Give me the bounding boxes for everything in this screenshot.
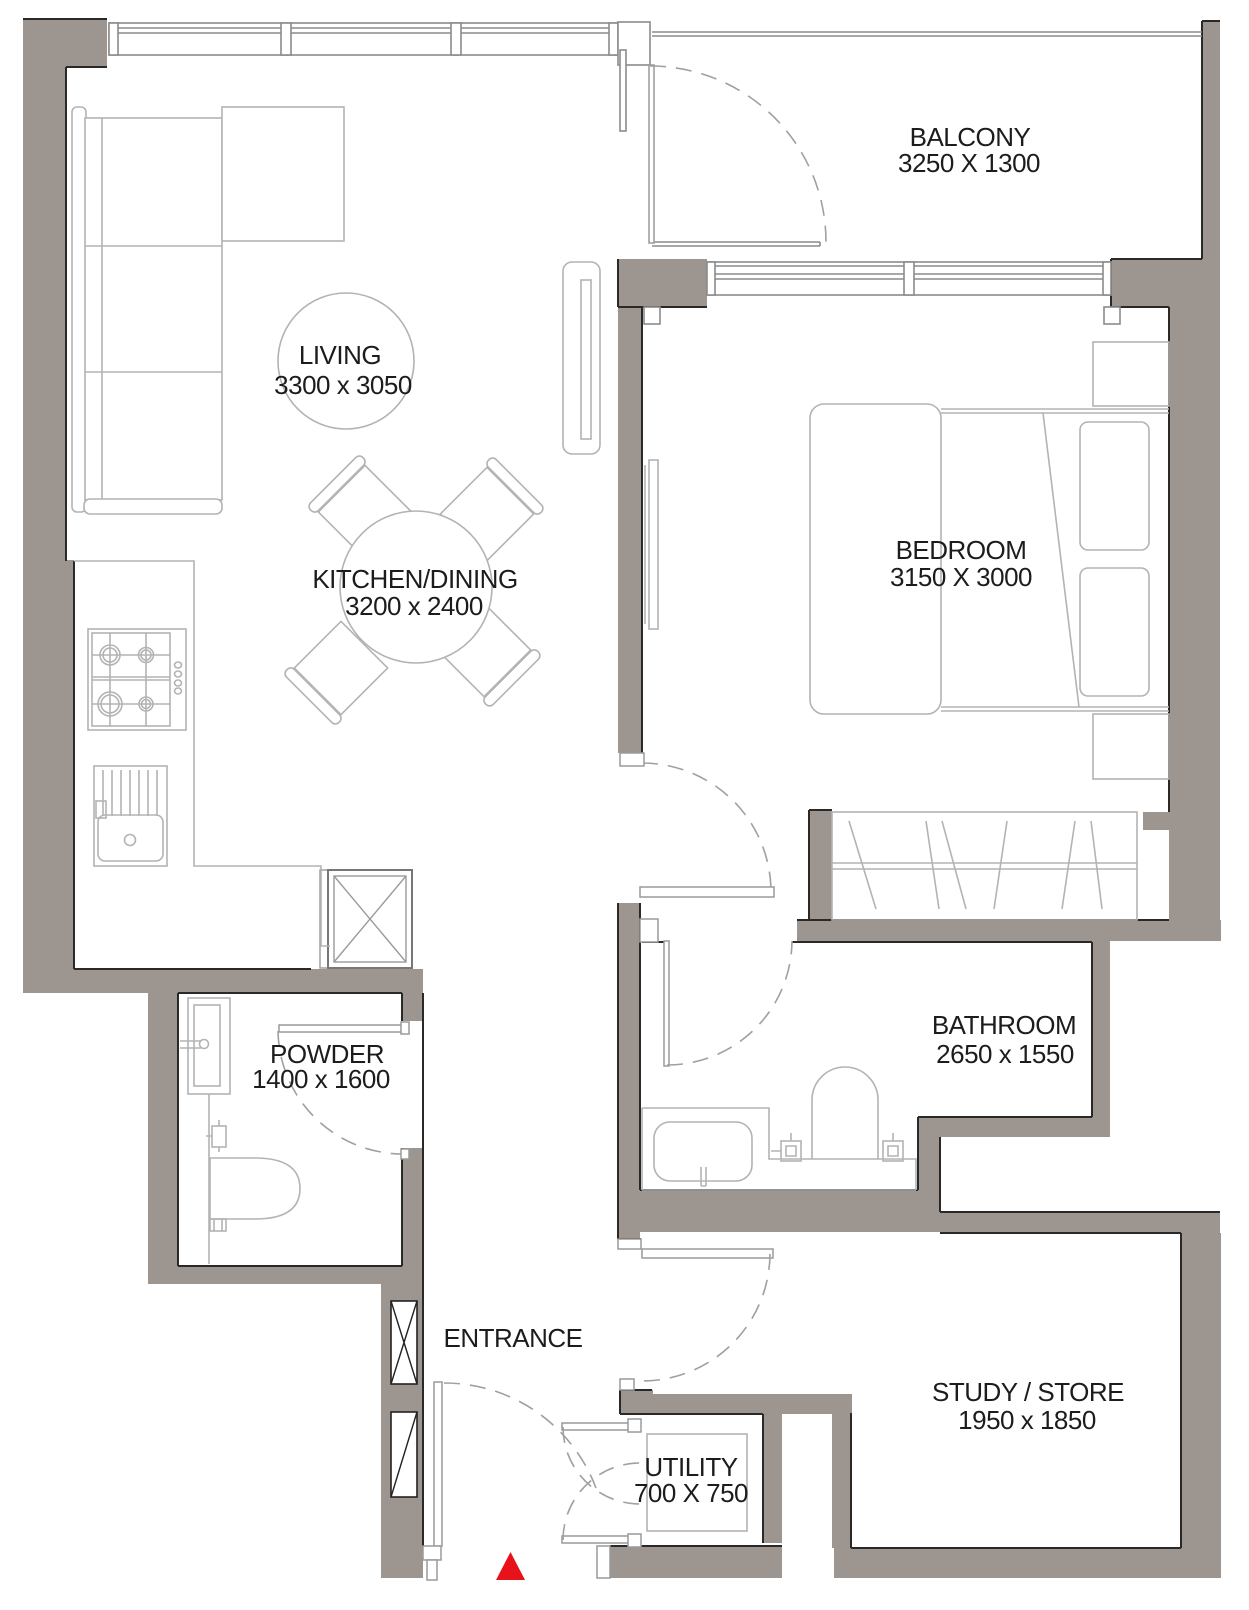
svg-text:3300 x 3050: 3300 x 3050 [274, 370, 412, 400]
svg-text:1400 x 1600: 1400 x 1600 [252, 1064, 390, 1094]
svg-text:ENTRANCE: ENTRANCE [443, 1323, 582, 1353]
svg-text:BATHROOM: BATHROOM [932, 1010, 1076, 1040]
svg-text:LIVING: LIVING [299, 340, 381, 370]
svg-text:STUDY / STORE: STUDY / STORE [932, 1377, 1124, 1407]
svg-text:3200 x 2400: 3200 x 2400 [345, 591, 483, 621]
svg-text:3250 X 1300: 3250 X 1300 [898, 148, 1040, 178]
svg-text:BEDROOM: BEDROOM [896, 535, 1027, 565]
svg-text:KITCHEN/DINING: KITCHEN/DINING [312, 564, 517, 594]
svg-text:1950 x 1850: 1950 x 1850 [958, 1405, 1096, 1435]
svg-text:2650 x 1550: 2650 x 1550 [936, 1039, 1074, 1069]
svg-text:3150 X 3000: 3150 X 3000 [890, 562, 1032, 592]
svg-text:700 X 750: 700 X 750 [634, 1478, 748, 1508]
